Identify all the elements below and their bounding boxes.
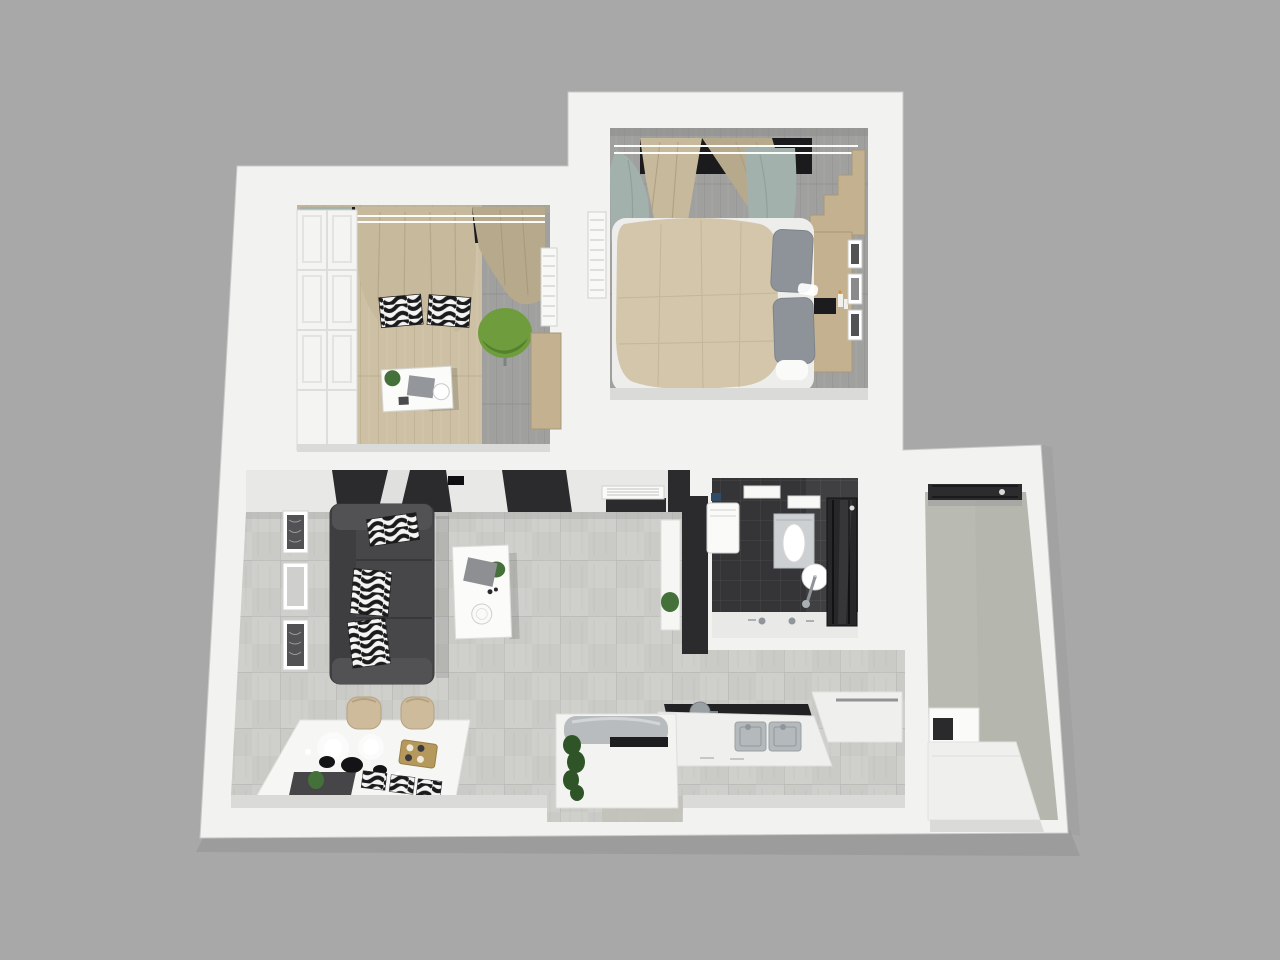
zebra-cushion-2 xyxy=(427,295,471,328)
placemat-1 xyxy=(361,771,387,791)
black-bowl-1 xyxy=(319,756,335,768)
hall-shelf-plant xyxy=(661,592,679,612)
dining-chair-2 xyxy=(401,697,434,729)
bed xyxy=(612,218,819,392)
black-bowl-2 xyxy=(341,757,363,773)
room-bathroom xyxy=(707,478,858,638)
door-handle xyxy=(999,489,1005,495)
bed-pillow-2 xyxy=(773,297,815,364)
appliance-door xyxy=(933,718,953,740)
utility-appliance xyxy=(929,708,979,744)
hall-shelf xyxy=(661,520,680,630)
dining-chair-1 xyxy=(347,697,381,729)
tv-device xyxy=(448,476,464,485)
kitchen-island xyxy=(556,714,678,808)
living-floor-shading xyxy=(246,512,690,519)
kitchen-counter xyxy=(658,702,832,766)
room-bedroom xyxy=(588,128,868,400)
island-appliance-slot xyxy=(610,737,668,747)
apartment-3d-floorplan xyxy=(0,0,1280,960)
bed-duvet xyxy=(616,218,779,389)
washer-display xyxy=(711,493,721,501)
desk xyxy=(381,366,459,414)
sofa-shadow xyxy=(436,516,449,678)
door-shadow xyxy=(928,500,1022,506)
toilet xyxy=(774,514,814,568)
bottom-wall-inner-right xyxy=(683,795,905,808)
coffee-table-plate xyxy=(471,604,492,625)
office-wall-inner-face xyxy=(297,444,550,452)
utility-wall-inner-face xyxy=(930,820,1044,832)
utility-door xyxy=(928,484,1022,506)
vanity-faucet-1 xyxy=(759,618,766,625)
sofa-zebra-pillow-2 xyxy=(350,568,392,616)
sofa-zebra-pillow-3 xyxy=(347,618,390,668)
desk-paper xyxy=(407,375,435,398)
bath-shelf-1 xyxy=(744,486,780,498)
bedroom-picture-frames xyxy=(848,240,862,340)
gold-tray xyxy=(399,740,438,769)
bedroom-floor-shading xyxy=(610,128,868,136)
bottom-wall-inner-left xyxy=(231,795,547,808)
vanity-faucet-2 xyxy=(789,618,796,625)
salt-shaker xyxy=(305,749,311,755)
media-wall-unit xyxy=(246,470,690,512)
bedroom-wall-inner-face xyxy=(610,388,868,400)
office-cabinet xyxy=(531,333,561,429)
sofa xyxy=(330,504,449,684)
zebra-cushion-1 xyxy=(379,294,423,328)
office-wardrobe xyxy=(297,210,357,450)
bedroom-radiator xyxy=(588,212,606,298)
media-panel-2 xyxy=(502,470,572,512)
bed-fold-bottom xyxy=(776,360,808,380)
floorplan-render xyxy=(0,0,1280,960)
living-picture-frames xyxy=(283,511,308,670)
bed-pillow-1 xyxy=(770,229,813,293)
media-panel-3 xyxy=(606,498,666,512)
faucet-left xyxy=(745,724,751,730)
faucet-right xyxy=(780,724,786,730)
sink-faucet-base xyxy=(802,600,810,608)
desk-plate xyxy=(433,383,450,400)
coffee-table xyxy=(452,545,519,641)
shower-head xyxy=(850,506,855,511)
bath-shelf-2 xyxy=(788,496,820,508)
shower xyxy=(827,498,857,626)
bathroom-west-panel xyxy=(682,496,708,654)
placemat-2 xyxy=(389,775,415,795)
dining-plant xyxy=(308,771,324,789)
office-radiator xyxy=(541,248,557,326)
room-office xyxy=(297,205,561,452)
